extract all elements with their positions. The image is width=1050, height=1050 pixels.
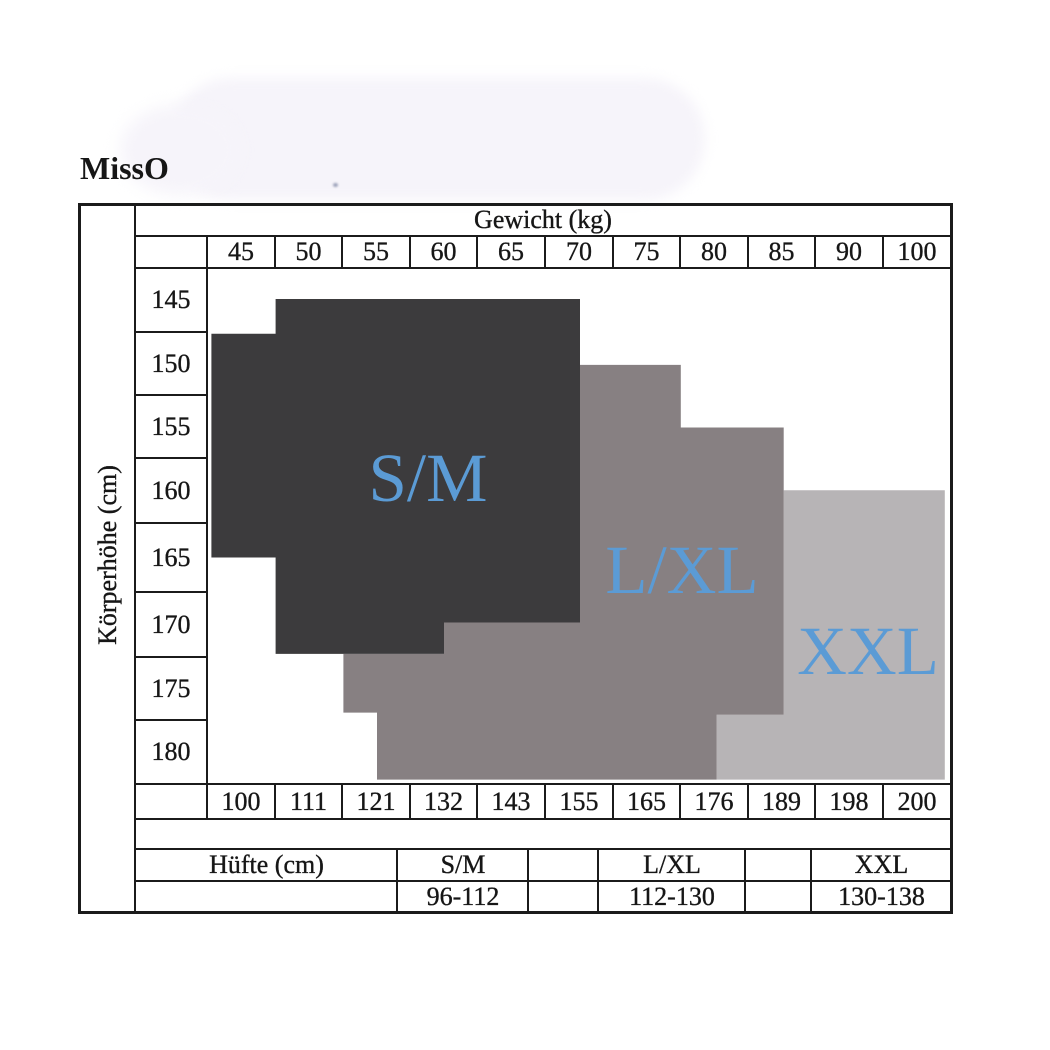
- svg-text:XXL: XXL: [797, 613, 939, 689]
- svg-text:S/M: S/M: [369, 440, 488, 516]
- svg-text:L/XL: L/XL: [605, 532, 758, 608]
